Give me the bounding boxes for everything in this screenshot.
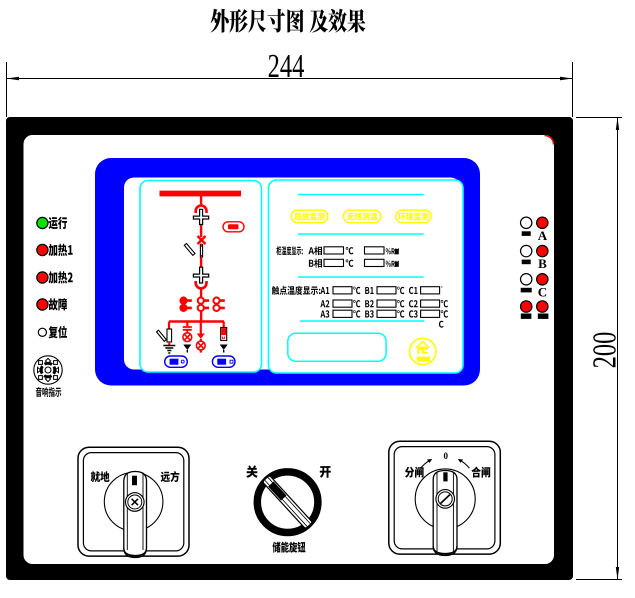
svg-text:A: A <box>538 228 548 243</box>
svg-text:244: 244 <box>268 48 305 85</box>
svg-text:200: 200 <box>587 332 624 369</box>
svg-text:0: 0 <box>444 451 449 461</box>
svg-text:B: B <box>538 256 547 271</box>
svg-text:C: C <box>538 284 547 299</box>
